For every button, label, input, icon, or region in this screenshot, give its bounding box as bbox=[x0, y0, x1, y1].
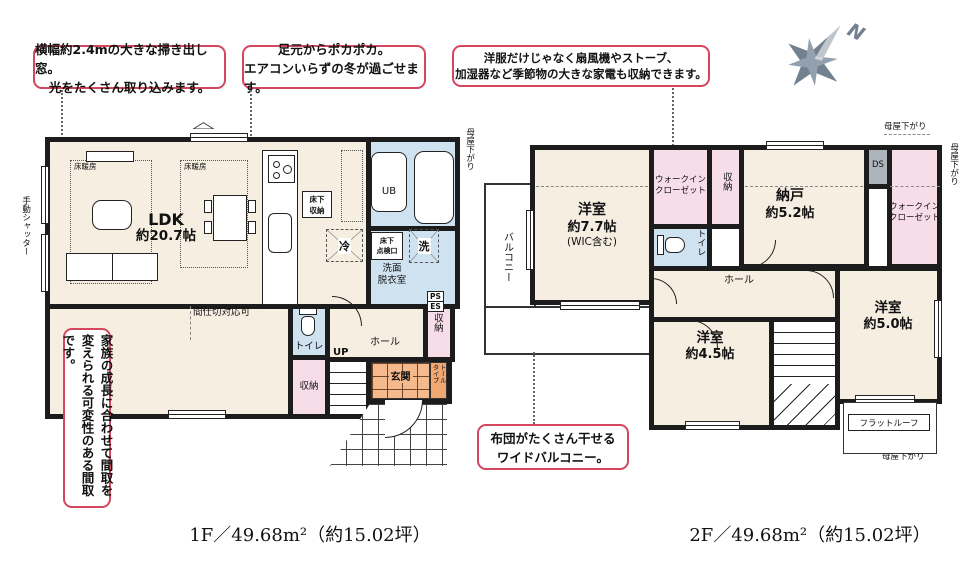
window-nando-top bbox=[766, 141, 824, 150]
storage-2f-label: 収納 bbox=[720, 172, 732, 191]
stairs-up-label: UP bbox=[333, 347, 348, 360]
toilet-tank-icon bbox=[299, 308, 317, 315]
stairs-2f-winder bbox=[774, 384, 835, 425]
inspection-line2: 点検口 bbox=[377, 246, 398, 256]
window-ldk-left-2 bbox=[41, 234, 49, 292]
tall-type-line1: トール bbox=[438, 364, 445, 398]
ldk-name-label: LDK bbox=[130, 210, 202, 230]
floorplan-page: 横幅約2.4mの大きな掃き出し窓。 光をたくさん取り込みます。 足元からポカポカ… bbox=[0, 0, 979, 570]
callout-storage-line1: 洋服だけじゃなく扇風機やストーブ、 bbox=[484, 50, 678, 66]
callout-storage-line2: 加湿器など季節物の大きな家電も収納できます。 bbox=[455, 66, 707, 82]
balcony-bottom bbox=[484, 306, 656, 355]
window-room-bottom bbox=[168, 410, 226, 419]
ldk-size-label: 約20.7帖 bbox=[130, 228, 202, 245]
tall-type-line2: タイプ bbox=[431, 364, 438, 398]
wic1-line1: ウォークイン bbox=[650, 175, 711, 186]
washer-label: 洗 bbox=[418, 238, 431, 254]
entrance-label: 玄関 bbox=[371, 372, 430, 385]
sink-icon bbox=[268, 213, 292, 253]
callout-heating-line1: 足元からポカポカ。 bbox=[278, 39, 391, 58]
hall-2f-label: ホール bbox=[724, 275, 754, 288]
bed2-size: 約4.5帖 bbox=[660, 347, 760, 363]
hall-1f-label: ホール bbox=[370, 337, 400, 350]
manual-shutter-label: 手動シャッター bbox=[20, 196, 31, 296]
window-ldk-top bbox=[190, 133, 248, 142]
storage-toilet-label: 収納 bbox=[288, 381, 330, 393]
ub-label: UB bbox=[372, 186, 406, 199]
fridge-space: 冷 bbox=[326, 229, 363, 262]
washer-space: 洗 bbox=[409, 229, 439, 263]
callout-storage: 洋服だけじゃなく扇風機やストーブ、 加湿器など季節物の大きな家電も収納できます。 bbox=[452, 45, 710, 87]
burner-icon bbox=[273, 172, 280, 179]
callout-heating: 足元からポカポカ。 エアコンいらずの冬が過ごせます。 bbox=[242, 45, 426, 89]
wic1-label: ウォークイン クローゼット bbox=[650, 175, 711, 198]
wic2-line2: クローゼット bbox=[888, 213, 941, 224]
nando-label: 納戸 約5.2帖 bbox=[742, 188, 838, 222]
callout-window-line2: 光をたくさん取り込みます。 bbox=[49, 77, 210, 96]
room-bed3 bbox=[835, 266, 942, 404]
callout-flexible: 家族の成長に合わせて間取を 変えられる可変性のある間取です。 bbox=[63, 328, 111, 508]
es-label: ES bbox=[427, 301, 444, 312]
caption-1f: 1F／49.68m²（約15.02坪） bbox=[155, 521, 465, 547]
flat-roof-label-box: フラットルーフ bbox=[848, 414, 930, 431]
window-ldk-left-1 bbox=[41, 166, 49, 224]
callout-futon: 布団がたくさん干せる ワイドバルコニー。 bbox=[477, 424, 629, 470]
flat-roof-label: フラットルーフ bbox=[860, 417, 919, 429]
bed1-size: 約7.7帖 bbox=[544, 220, 640, 236]
bed1-label: 洋室 約7.7帖 (WIC含む) bbox=[544, 202, 640, 249]
floor-heating-label-1: 床暖房 bbox=[74, 162, 97, 171]
washroom-line2: 脱衣室 bbox=[370, 275, 414, 287]
callout-heating-line2: エアコンいらずの冬が過ごせます。 bbox=[244, 58, 424, 96]
bed1-name: 洋室 bbox=[544, 202, 640, 220]
window-bed3-right bbox=[934, 300, 942, 358]
bed3-name: 洋室 bbox=[840, 300, 936, 317]
partition-hint-line bbox=[190, 306, 191, 340]
chair-icon bbox=[248, 200, 256, 213]
moya-sagari-top-left: 母屋下がり bbox=[464, 128, 475, 186]
bath-washing-area-icon bbox=[371, 152, 407, 212]
toilet-bowl-icon bbox=[301, 316, 315, 336]
caption-2f: 2F／49.68m²（約15.02坪） bbox=[655, 521, 965, 547]
compass-north-label: N bbox=[844, 19, 868, 46]
underfloor-storage-box: 床下 収納 bbox=[302, 191, 332, 218]
callout-window: 横幅約2.4mの大きな掃き出し窓。 光をたくさん取り込みます。 bbox=[33, 45, 226, 89]
toilet-2f-tank-icon bbox=[657, 235, 664, 255]
fridge-label: 冷 bbox=[338, 238, 351, 254]
nando-name: 納戸 bbox=[742, 188, 838, 206]
callout-window-line1: 横幅約2.4mの大きな掃き出し窓。 bbox=[35, 39, 224, 77]
dining-table-icon bbox=[213, 195, 247, 241]
window-bed1-left bbox=[526, 210, 534, 270]
tv-board-icon bbox=[86, 151, 134, 162]
chair-icon bbox=[248, 221, 256, 234]
roof-slope-line-1 bbox=[536, 186, 648, 187]
balcony-label: バルコニー bbox=[500, 232, 513, 282]
partitionable-label: 間仕切対応可 bbox=[193, 307, 250, 319]
chair-icon bbox=[204, 200, 212, 213]
toilet-2f-bowl-icon bbox=[665, 237, 685, 253]
washroom-label: 洗面 脱衣室 bbox=[370, 263, 414, 287]
window-bed2-bottom bbox=[685, 421, 740, 430]
toilet-1f-label: トイレ bbox=[288, 341, 330, 353]
chair-icon bbox=[204, 221, 212, 234]
wic2-line1: ウォークイン bbox=[888, 202, 941, 213]
window-bed1-balcony bbox=[560, 301, 640, 310]
callout-futon-line1: 布団がたくさん干せる bbox=[490, 428, 615, 447]
underfloor-storage-line1: 床下 bbox=[310, 194, 325, 205]
burner-icon bbox=[283, 165, 292, 174]
pantry-zone bbox=[341, 150, 363, 222]
wic1-line2: クローゼット bbox=[650, 186, 711, 197]
storage-hall-label: 収納 bbox=[431, 313, 443, 332]
bed3-label: 洋室 約5.0帖 bbox=[840, 300, 936, 333]
sofa-icon bbox=[66, 253, 158, 281]
bed3-size: 約5.0帖 bbox=[840, 317, 936, 333]
awning-window-icon: △ bbox=[192, 121, 214, 132]
washroom-line1: 洗面 bbox=[370, 263, 414, 275]
underfloor-storage-line2: 収納 bbox=[310, 205, 325, 216]
stairs-2f-treads bbox=[774, 322, 835, 384]
leader-line-futon bbox=[533, 352, 535, 424]
burner-icon bbox=[273, 161, 280, 168]
callout-flexible-line2: 変えられる可変性のある間取です。 bbox=[59, 334, 97, 502]
inspection-hatch-box: 床下 点検口 bbox=[371, 232, 403, 260]
roof-slope-line-3 bbox=[890, 186, 940, 187]
moya-sagari-right: 母屋下がり bbox=[948, 143, 959, 203]
ds-label: DS bbox=[868, 160, 888, 171]
callout-flexible-line1: 家族の成長に合わせて間取を bbox=[97, 334, 116, 502]
toilet-2f-label: トイレ bbox=[694, 229, 705, 256]
leader-line-storage bbox=[672, 88, 674, 150]
bed1-note: (WIC含む) bbox=[544, 236, 640, 249]
callout-futon-line2: ワイドバルコニー。 bbox=[497, 447, 609, 466]
floor-heating-label-2: 床暖房 bbox=[184, 162, 207, 171]
coffee-table-icon bbox=[92, 200, 132, 230]
moya-bracket-h bbox=[884, 134, 930, 135]
wic2-label: ウォークイン クローゼット bbox=[888, 202, 941, 225]
roof-slope-line-2 bbox=[745, 186, 863, 187]
bathtub-icon bbox=[414, 151, 454, 224]
tall-type-label: トール タイプ bbox=[431, 364, 445, 398]
inspection-line1: 床下 bbox=[380, 236, 394, 246]
stove-icon bbox=[268, 155, 295, 183]
stairs-1f bbox=[330, 362, 366, 414]
compass-icon: N bbox=[762, 8, 877, 103]
moya-sagari-top-right: 母屋下がり bbox=[884, 122, 927, 133]
callout-flexible-text: 家族の成長に合わせて間取を 変えられる可変性のある間取です。 bbox=[59, 334, 116, 502]
nando-size: 約5.2帖 bbox=[742, 206, 838, 222]
